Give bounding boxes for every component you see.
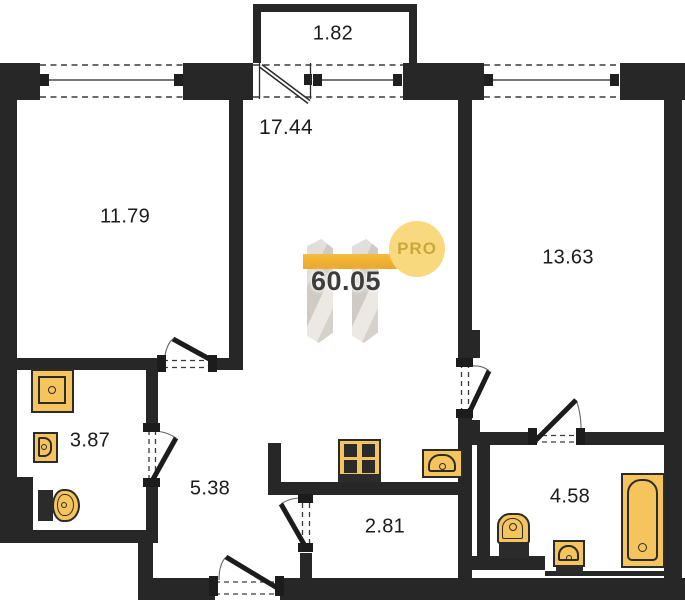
- balcony-door: [260, 63, 311, 102]
- sink-fixture-bathroom-left: [33, 432, 58, 463]
- toilet-fixture-right: [497, 513, 530, 544]
- stove-base: [338, 474, 381, 483]
- kitchen-sink-fixture: [422, 449, 463, 478]
- washing-machine-fixture: [31, 369, 74, 413]
- stove-fixture: [338, 439, 381, 477]
- room-area-label-bathroom-right: 4.58: [550, 486, 590, 509]
- toilet-fixture-left: [52, 489, 80, 522]
- room-area-label-hallway: 5.38: [190, 478, 230, 501]
- room-area-label-balcony: 1.82: [313, 23, 353, 46]
- toilet-tank-left: [38, 490, 53, 521]
- window-dashes: [40, 65, 620, 97]
- sink-base-right: [556, 565, 583, 573]
- doors-windows-layer: [0, 0, 685, 600]
- sink-fixture-bathroom-right: [553, 540, 585, 567]
- room-area-label-living-kitchen: 17.44: [259, 116, 313, 140]
- room-area-label-room-right: 13.63: [542, 247, 594, 270]
- toilet-tank-right: [499, 542, 529, 558]
- room-area-label-room-left: 11.79: [100, 206, 150, 229]
- room-area-label-wardrobe: 2.81: [365, 516, 405, 539]
- room-area-label-bathroom-left: 3.87: [70, 430, 110, 453]
- bathtub-fixture: [621, 473, 665, 568]
- floor-plan: PRO 60.05: [0, 0, 685, 600]
